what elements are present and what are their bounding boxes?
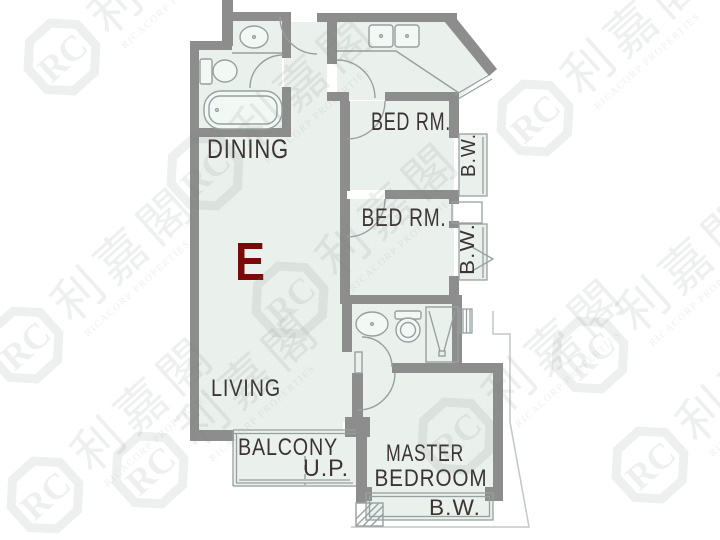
label-bw-master: B.W. [429,495,481,520]
toilet1 [200,59,237,84]
bathroom2-sink [356,312,388,336]
window-notch [452,202,482,223]
label-bed-rm-1: BED RM. [371,108,451,136]
label-up: U.P. [303,455,349,482]
floorplan-page: RC 利嘉閣 RICACORP PROPERTIES [0,0,720,540]
vestibule-floor [355,363,395,373]
toilet2 [395,311,421,342]
floorplan-svg: RC 利嘉閣 RICACORP PROPERTIES [0,0,720,540]
label-bw-2: B.W. [457,223,479,275]
